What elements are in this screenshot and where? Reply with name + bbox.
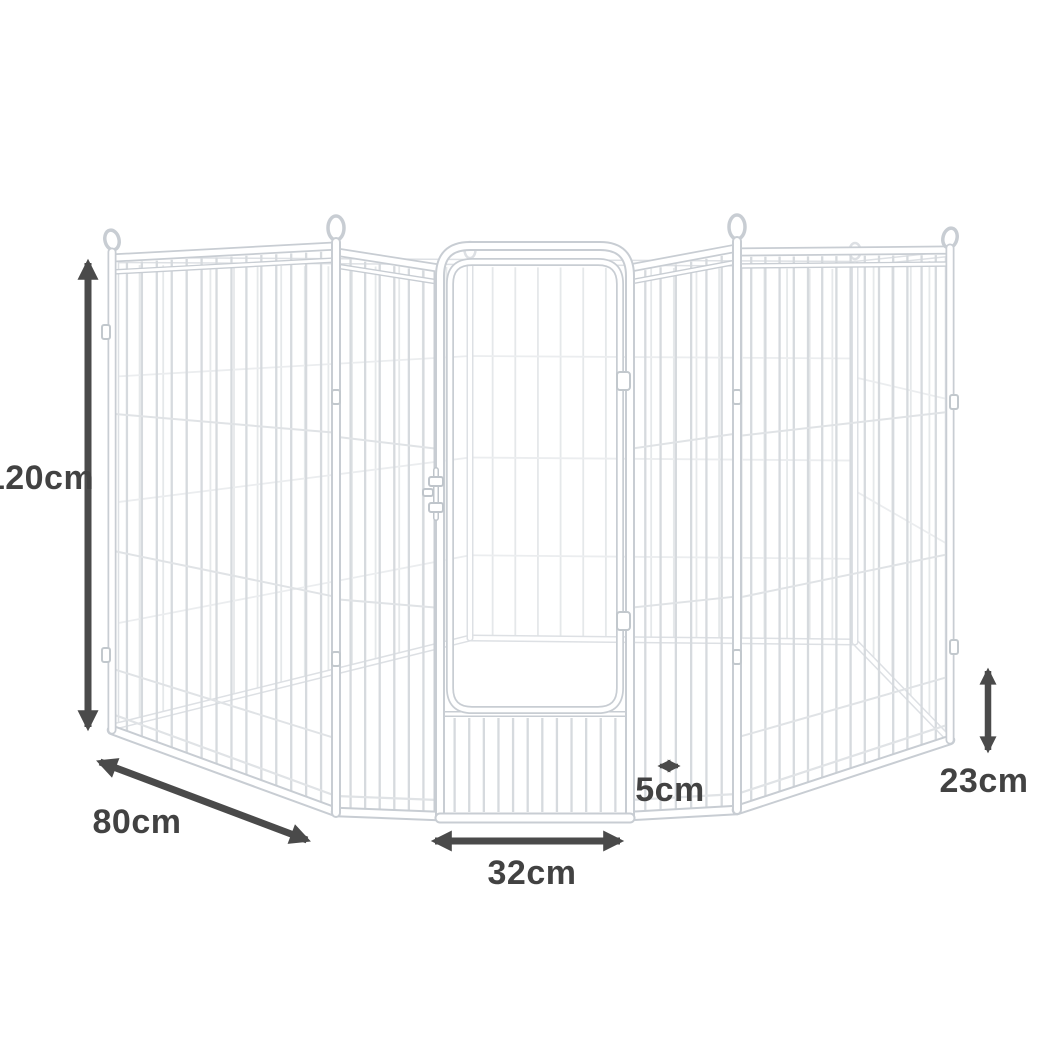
playpen-illustration bbox=[102, 215, 959, 818]
product-dimension-figure: 120cm 80cm 32cm 5cm 23cm bbox=[0, 0, 1050, 1050]
playpen-dimension-svg: 120cm 80cm 32cm 5cm 23cm bbox=[0, 0, 1050, 1050]
door-width-label: 32cm bbox=[488, 854, 577, 892]
height-label: 120cm bbox=[0, 459, 94, 497]
dimension-height: 120cm bbox=[0, 263, 94, 727]
panel-width-label: 80cm bbox=[93, 803, 182, 841]
bar-gap-label: 5cm bbox=[635, 771, 705, 809]
dimension-bar-gap: 5cm bbox=[635, 766, 705, 809]
dimension-door-width: 32cm bbox=[435, 841, 620, 892]
bottom-height-label: 23cm bbox=[940, 762, 1029, 800]
front-panels bbox=[112, 246, 950, 816]
